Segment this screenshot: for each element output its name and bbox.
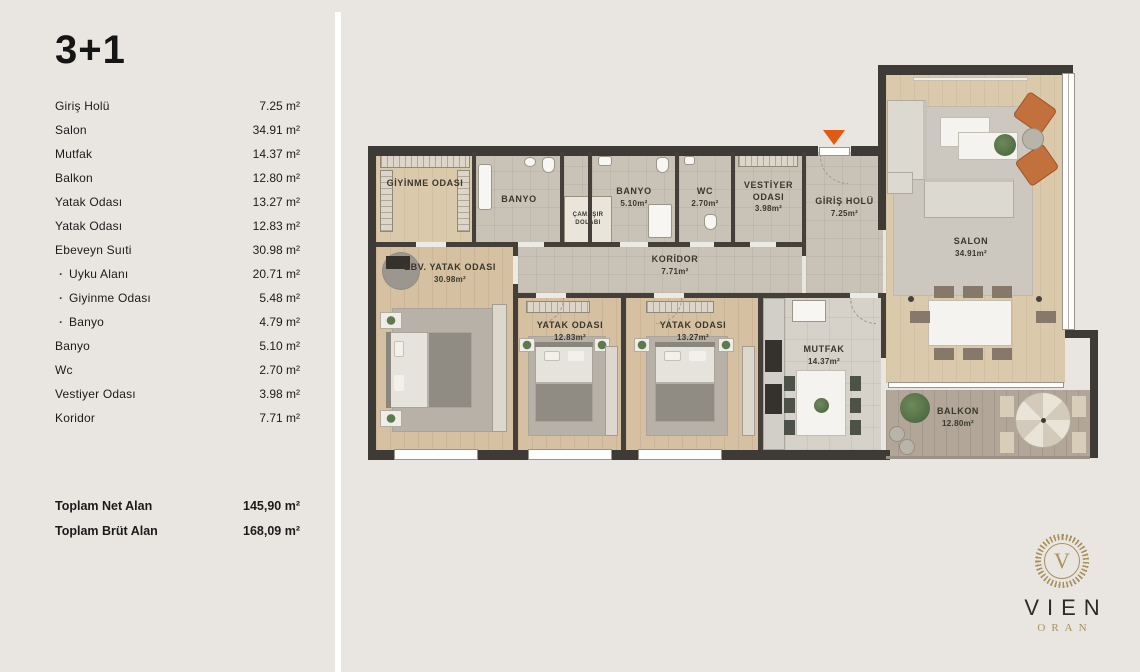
toilet bbox=[656, 157, 669, 173]
plant bbox=[994, 134, 1016, 156]
tv-unit bbox=[913, 77, 1028, 81]
area-row-suit-banyo: ·Banyo4.79 m² bbox=[55, 315, 300, 339]
door-opening bbox=[690, 242, 714, 247]
area-row-koridor: Koridor7.71 m² bbox=[55, 411, 300, 435]
wall bbox=[758, 298, 763, 450]
area-row-vestiyer: Vestiyer Odası3.98 m² bbox=[55, 387, 300, 411]
window-band bbox=[1062, 73, 1075, 330]
area-row-ebeveyn-suiti: Ebeveyn Suıti30.98 m² bbox=[55, 243, 300, 267]
area-row-balkon: Balkon12.80 m² bbox=[55, 171, 300, 195]
room-label-balkon: BALKON 12.80m² bbox=[916, 406, 1000, 429]
sub-bullet: · bbox=[59, 291, 63, 305]
door-opening bbox=[750, 242, 776, 247]
totals: Toplam Net Alan145,90 m² Toplam Brüt Ala… bbox=[55, 499, 300, 549]
cooktop bbox=[765, 340, 782, 372]
brand-name: VIEN bbox=[1012, 595, 1112, 621]
brand-monogram: V bbox=[1054, 548, 1070, 574]
shower bbox=[648, 204, 672, 238]
sofa-l bbox=[887, 100, 927, 180]
wall bbox=[881, 298, 886, 358]
window bbox=[528, 449, 612, 460]
wardrobe bbox=[380, 154, 470, 168]
room-area-list: Giriş Holü7.25 m² Salon34.91 m² Mutfak14… bbox=[55, 99, 300, 435]
window bbox=[394, 449, 478, 460]
brand-logo: V VIEN ORAN bbox=[1012, 534, 1112, 634]
kitchen-counter bbox=[763, 298, 785, 450]
area-row-yatak-1: Yatak Odası13.27 m² bbox=[55, 195, 300, 219]
area-row-banyo: Banyo5.10 m² bbox=[55, 339, 300, 363]
blanket bbox=[536, 382, 592, 421]
door-opening bbox=[416, 242, 446, 247]
dresser bbox=[492, 304, 507, 432]
sliding-door bbox=[888, 382, 1064, 388]
fridge bbox=[792, 300, 826, 322]
pillow bbox=[544, 351, 560, 361]
brand-subname: ORAN bbox=[1012, 622, 1112, 634]
door-opening bbox=[513, 256, 518, 284]
area-row-salon: Salon34.91 m² bbox=[55, 123, 300, 147]
plant bbox=[814, 398, 829, 413]
wall bbox=[878, 65, 1073, 75]
sub-bullet: · bbox=[59, 315, 63, 329]
dining-chairs bbox=[934, 286, 954, 298]
blanket bbox=[427, 333, 471, 407]
wall bbox=[368, 146, 818, 156]
dresser bbox=[605, 346, 618, 436]
floor-lamp bbox=[908, 296, 914, 302]
door-opening bbox=[620, 242, 648, 247]
balcony-table bbox=[899, 439, 915, 455]
floor-plan: ÇAMAŞIR DOLABI bbox=[368, 46, 1113, 508]
sofa-corner bbox=[887, 172, 913, 194]
nightstand bbox=[380, 312, 402, 329]
area-row-yatak-2: Yatak Odası12.83 m² bbox=[55, 219, 300, 243]
brand-emblem-icon: V bbox=[1035, 534, 1089, 588]
sink bbox=[524, 157, 536, 167]
room-label-wc: WC 2.70m² bbox=[679, 186, 731, 209]
room-label-giris: GİRİŞ HOLÜ 7.25m² bbox=[806, 196, 883, 219]
sub-bullet: · bbox=[59, 267, 63, 281]
room-label-ebv-yatak: EBV. YATAK ODASI 30.98m² bbox=[390, 262, 510, 285]
side-table bbox=[1022, 128, 1044, 150]
wall bbox=[513, 293, 886, 298]
unit-type-title: 3+1 bbox=[55, 28, 300, 73]
area-row-giyinme-odasi: ·Giyinme Odası5.48 m² bbox=[55, 291, 300, 315]
floorplan-sheet: 3+1 Giriş Holü7.25 m² Salon34.91 m² Mutf… bbox=[0, 0, 1140, 672]
wall bbox=[560, 152, 564, 244]
door-opening bbox=[518, 242, 544, 247]
umbrella bbox=[1015, 392, 1071, 448]
kitchen-chairs bbox=[784, 376, 795, 391]
room-label-vestiyer: VESTİYER ODASI 3.98m² bbox=[735, 180, 802, 215]
pillow bbox=[664, 351, 681, 361]
sink bbox=[684, 156, 695, 165]
oven bbox=[765, 384, 782, 414]
bed bbox=[535, 342, 593, 422]
sink bbox=[598, 156, 612, 166]
entrance-arrow-icon bbox=[823, 130, 845, 145]
wall bbox=[588, 152, 592, 244]
toilet bbox=[704, 214, 717, 230]
area-list-panel: 3+1 Giriş Holü7.25 m² Salon34.91 m² Mutf… bbox=[55, 28, 300, 549]
room-label-salon: SALON 34.91m² bbox=[931, 236, 1011, 259]
room-label-yatak-1283: YATAK ODASI 12.83m² bbox=[520, 320, 620, 343]
wall bbox=[621, 298, 626, 450]
total-gross-row: Toplam Brüt Alan168,09 m² bbox=[55, 524, 300, 549]
room-label-giyinme: GİYİNME ODASI bbox=[386, 178, 464, 190]
total-net-row: Toplam Net Alan145,90 m² bbox=[55, 499, 300, 524]
area-row-mutfak: Mutfak14.37 m² bbox=[55, 147, 300, 171]
panel-divider bbox=[335, 12, 341, 672]
room-label-koridor: KORİDOR 7.71m² bbox=[630, 254, 720, 277]
room-label-yatak-1327: YATAK ODASI 13.27m² bbox=[638, 320, 748, 343]
umbrella-pole bbox=[1041, 418, 1046, 423]
room-label-banyo: BANYO 5.10m² bbox=[596, 186, 672, 209]
lounge-chairs bbox=[1000, 396, 1014, 417]
blanket bbox=[656, 382, 714, 421]
pillow bbox=[394, 341, 404, 357]
brand-monogram-ring: V bbox=[1044, 543, 1080, 579]
toilet bbox=[542, 157, 555, 173]
entrance-sill bbox=[819, 147, 850, 156]
headboard bbox=[386, 332, 391, 408]
area-row-uyku-alani: ·Uyku Alanı20.71 m² bbox=[55, 267, 300, 291]
area-row-wc: Wc2.70 m² bbox=[55, 363, 300, 387]
area-row-giris-holu: Giriş Holü7.25 m² bbox=[55, 99, 300, 123]
wall bbox=[368, 146, 376, 460]
sofa bbox=[924, 178, 1014, 218]
dresser bbox=[742, 346, 755, 436]
nightstand bbox=[380, 410, 402, 427]
window bbox=[638, 449, 722, 460]
bed bbox=[386, 332, 472, 408]
balcony-railing bbox=[886, 456, 1090, 459]
room-label-mutfak: MUTFAK 14.37m² bbox=[784, 344, 864, 367]
wall bbox=[1090, 330, 1098, 458]
bed bbox=[655, 342, 715, 422]
dining-table bbox=[928, 300, 1012, 346]
room-label-ebeveyn-banyo: BANYO bbox=[484, 194, 554, 206]
wall bbox=[472, 152, 476, 244]
